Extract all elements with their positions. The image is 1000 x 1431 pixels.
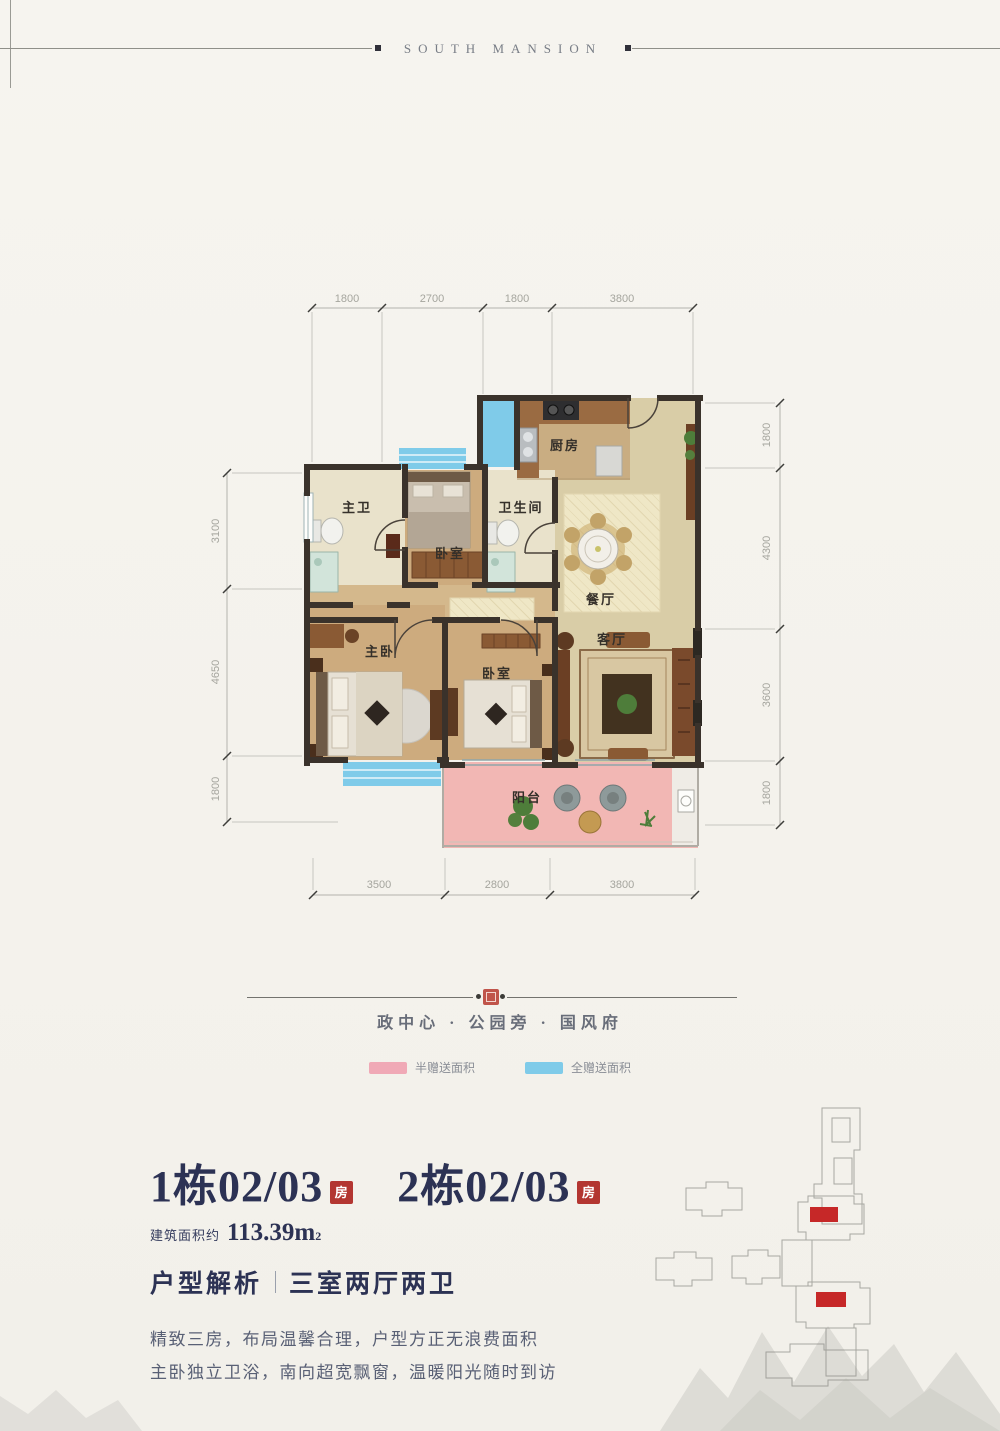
divider-dot-right [500, 994, 505, 999]
poster-page: SOUTH MANSION [0, 0, 1000, 1431]
svg-text:2800: 2800 [485, 879, 509, 891]
layout-value: 三室两厅两卫 [289, 1264, 457, 1300]
site-plan-building [656, 1252, 712, 1286]
room-label-dining: 餐厅 [585, 592, 616, 607]
divider-line-left [247, 997, 473, 998]
room-label-living: 客厅 [597, 632, 627, 647]
svg-text:3500: 3500 [367, 879, 391, 891]
slogan-text: 政中心 · 公园旁 · 国风府 [0, 1009, 1000, 1033]
full-gift-swatch [525, 1062, 563, 1074]
svg-text:1800: 1800 [761, 423, 773, 447]
site-plan [640, 1090, 1000, 1430]
unit1-badge: 房 [330, 1181, 353, 1204]
room-label-bathroom: 卫生间 [498, 500, 543, 515]
subtitle-divider [275, 1271, 276, 1293]
unit2-badge: 房 [577, 1181, 600, 1204]
built-area-label: 建筑面积约 [150, 1225, 220, 1244]
unit2-title: 2栋02/03 [397, 1163, 570, 1211]
divider-line-right [507, 997, 737, 998]
room-label-kitchen: 厨房 [550, 438, 580, 453]
half-gift-label: 半赠送面积 [415, 1059, 475, 1076]
svg-text:2700: 2700 [420, 293, 444, 305]
gift-area-legend: 半赠送面积 全赠送面积 [0, 1059, 1000, 1076]
built-area-row: 建筑面积约 113.39m 2 [150, 1219, 710, 1247]
analysis-label: 户型解析 [150, 1264, 262, 1300]
svg-text:4650: 4650 [210, 660, 222, 684]
site-plan-highlights [810, 1207, 846, 1307]
room-label-balcony: 阳台 [512, 790, 542, 805]
site-plan-building [686, 1182, 742, 1216]
seal-stamp-icon [483, 989, 499, 1005]
site-plan-highlight-2 [816, 1292, 846, 1307]
legend-item-full-gift: 全赠送面积 [525, 1059, 631, 1076]
site-plan-building [814, 1108, 862, 1224]
unit-info: 1栋02/03 房 2栋02/03 房 建筑面积约 113.39m 2 户型解析… [150, 1163, 710, 1389]
full-gift-label: 全赠送面积 [571, 1059, 631, 1076]
description-line-1: 精致三房，布局温馨合理，户型方正无浪费面积 [150, 1323, 710, 1356]
floorplan-drawing: 1800 2700 1800 3800 3100 4650 1800 1800 … [190, 268, 810, 928]
built-area-superscript: 2 [315, 1229, 321, 1244]
site-plan-building [782, 1240, 812, 1286]
description-line-2: 主卧独立卫浴，南向超宽飘窗，温暖阳光随时到访 [150, 1356, 710, 1389]
corner-accent-line [10, 0, 11, 88]
brand-title: SOUTH MANSION [382, 41, 624, 57]
site-plan-highlight-1 [810, 1207, 838, 1222]
header-square-right [625, 45, 631, 51]
svg-text:3100: 3100 [210, 519, 222, 543]
svg-text:1800: 1800 [761, 781, 773, 805]
svg-text:3600: 3600 [761, 683, 773, 707]
built-area-value: 113.39m [227, 1219, 315, 1247]
site-plan-building [826, 1328, 856, 1376]
room-label-master-bath: 主卫 [342, 500, 372, 515]
half-gift-swatch [369, 1062, 407, 1074]
svg-text:1800: 1800 [210, 777, 222, 801]
divider-dot-left [476, 994, 481, 999]
room-label-bedroom-top: 卧室 [435, 546, 465, 561]
layout-subtitle: 户型解析 三室两厅两卫 [150, 1264, 710, 1300]
svg-text:1800: 1800 [505, 293, 529, 305]
site-plan-building [732, 1250, 780, 1284]
room-label-master-bedroom: 主卧 [365, 644, 395, 659]
room-label-bedroom-bottom: 卧室 [482, 666, 512, 681]
svg-text:3800: 3800 [610, 879, 634, 891]
header-square-left [375, 45, 381, 51]
header-rule-right [632, 48, 1000, 49]
unit1-title: 1栋02/03 [150, 1163, 323, 1211]
site-plan-building [766, 1344, 868, 1386]
legend-item-half-gift: 半赠送面积 [369, 1059, 475, 1076]
header-rule-left [0, 48, 372, 49]
unit-title-row: 1栋02/03 房 2栋02/03 房 [150, 1163, 710, 1211]
svg-text:3800: 3800 [610, 293, 634, 305]
svg-text:4300: 4300 [761, 536, 773, 560]
svg-text:1800: 1800 [335, 293, 359, 305]
